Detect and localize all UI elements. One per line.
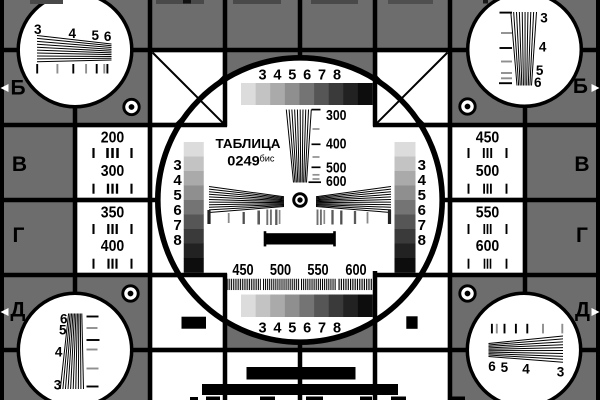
svg-text:8: 8 [333, 321, 341, 337]
svg-text:ТАБЛИЦА: ТАБЛИЦА [216, 136, 281, 151]
svg-text:550: 550 [307, 262, 328, 279]
svg-text:5: 5 [91, 28, 99, 43]
svg-text:3: 3 [540, 11, 548, 26]
svg-text:7: 7 [318, 321, 326, 337]
svg-text:5: 5 [59, 323, 67, 338]
svg-text:Б: Б [10, 77, 25, 100]
svg-text:8: 8 [418, 232, 426, 249]
svg-text:Д: Д [575, 299, 590, 322]
svg-text:400: 400 [101, 238, 125, 255]
svg-text:300: 300 [326, 108, 347, 124]
svg-text:3: 3 [557, 364, 565, 379]
svg-text:5: 5 [501, 360, 509, 375]
svg-text:8: 8 [173, 232, 181, 249]
svg-text:7: 7 [318, 68, 326, 84]
svg-text:600: 600 [326, 174, 347, 190]
svg-text:3: 3 [34, 22, 42, 37]
svg-text:3: 3 [54, 378, 62, 393]
svg-text:0249: 0249 [227, 152, 260, 168]
svg-text:6: 6 [303, 321, 311, 337]
svg-text:600: 600 [345, 262, 366, 279]
svg-text:6: 6 [303, 68, 311, 84]
svg-text:бис: бис [260, 153, 275, 163]
svg-text:300: 300 [101, 163, 125, 180]
svg-text:3: 3 [258, 321, 266, 337]
svg-text:Д: Д [10, 299, 25, 322]
svg-text:200: 200 [101, 130, 125, 147]
svg-text:350: 350 [101, 205, 125, 222]
svg-text:4: 4 [68, 26, 76, 41]
svg-text:4: 4 [273, 68, 281, 84]
svg-text:500: 500 [476, 163, 500, 180]
svg-text:400: 400 [326, 137, 347, 153]
svg-text:6: 6 [534, 75, 542, 90]
svg-text:4: 4 [55, 344, 63, 359]
svg-text:5: 5 [288, 321, 296, 337]
svg-text:4: 4 [273, 321, 281, 337]
svg-text:В: В [12, 153, 27, 176]
svg-text:4: 4 [539, 40, 547, 55]
svg-text:6: 6 [488, 359, 496, 374]
svg-text:3: 3 [258, 68, 266, 84]
svg-text:Г: Г [13, 224, 25, 247]
svg-text:600: 600 [476, 238, 500, 255]
svg-text:Б: Б [573, 75, 588, 98]
svg-text:Г: Г [576, 224, 588, 247]
svg-text:550: 550 [476, 205, 500, 222]
svg-text:5: 5 [288, 68, 296, 84]
svg-text:8: 8 [333, 68, 341, 84]
svg-text:450: 450 [476, 130, 500, 147]
svg-text:500: 500 [270, 262, 291, 279]
svg-text:В: В [574, 153, 589, 176]
svg-text:6: 6 [104, 29, 112, 44]
svg-text:450: 450 [232, 262, 253, 279]
svg-text:4: 4 [522, 362, 530, 377]
